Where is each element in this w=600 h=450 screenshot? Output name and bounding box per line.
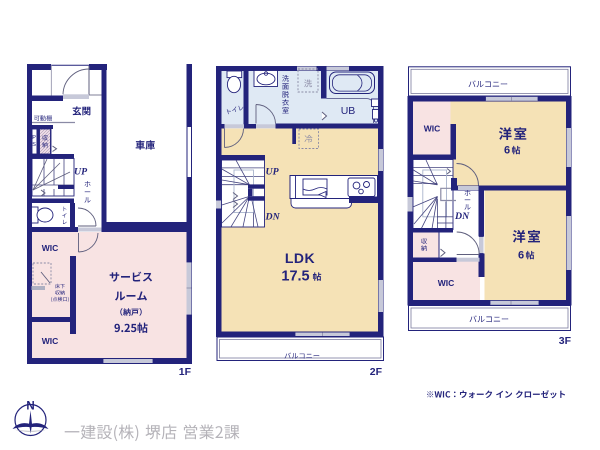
svg-text:17.5: 17.5 — [281, 269, 309, 285]
svg-text:6: 6 — [518, 250, 524, 262]
svg-text:WIC: WIC — [42, 336, 59, 346]
svg-text:LDK: LDK — [285, 250, 315, 266]
svg-text:WIC: WIC — [424, 124, 441, 134]
svg-text:DN: DN — [454, 211, 470, 222]
svg-text:WIC: WIC — [42, 243, 59, 253]
svg-text:WIC: WIC — [438, 278, 455, 288]
svg-text:6: 6 — [504, 145, 510, 157]
svg-text:UP: UP — [266, 167, 280, 178]
svg-text:P: P — [32, 135, 36, 141]
svg-text:UB: UB — [341, 105, 356, 117]
svg-text:DN: DN — [265, 212, 281, 223]
svg-text:3F: 3F — [559, 335, 572, 347]
svg-text:UP: UP — [74, 167, 88, 178]
svg-text:2F: 2F — [370, 366, 383, 378]
svg-text:1F: 1F — [179, 366, 192, 378]
svg-text:S: S — [32, 142, 36, 148]
